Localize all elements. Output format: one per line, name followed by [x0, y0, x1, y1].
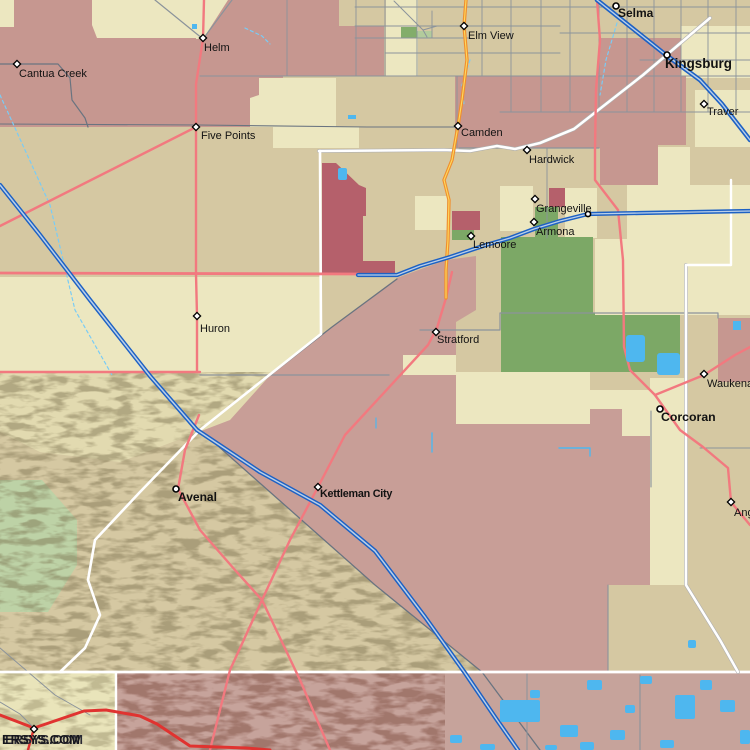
svg-text:Armona: Armona — [536, 226, 575, 238]
svg-text:Corcoran: Corcoran — [661, 410, 716, 424]
svg-text:Lemoore: Lemoore — [473, 239, 516, 251]
svg-text:Helm: Helm — [204, 42, 230, 54]
svg-text:Kingsburg: Kingsburg — [665, 56, 732, 71]
svg-text:Elm View: Elm View — [468, 30, 514, 42]
svg-text:Waukena: Waukena — [707, 378, 750, 390]
svg-text:ERSYS.COM: ERSYS.COM — [2, 732, 80, 747]
svg-text:Grangeville: Grangeville — [536, 203, 592, 215]
svg-text:Angiola: Angiola — [734, 507, 750, 519]
svg-text:Traver: Traver — [707, 106, 739, 118]
svg-text:Avenal: Avenal — [178, 490, 217, 504]
svg-text:Selma: Selma — [618, 6, 654, 20]
svg-text:Stratford: Stratford — [437, 334, 479, 346]
svg-text:Cantua Creek: Cantua Creek — [19, 68, 87, 80]
svg-text:Huron: Huron — [200, 323, 230, 335]
svg-text:Kettleman City: Kettleman City — [320, 488, 392, 500]
svg-text:Hardwick: Hardwick — [529, 154, 575, 166]
svg-text:Five Points: Five Points — [201, 130, 256, 142]
svg-text:Camden: Camden — [461, 127, 503, 139]
